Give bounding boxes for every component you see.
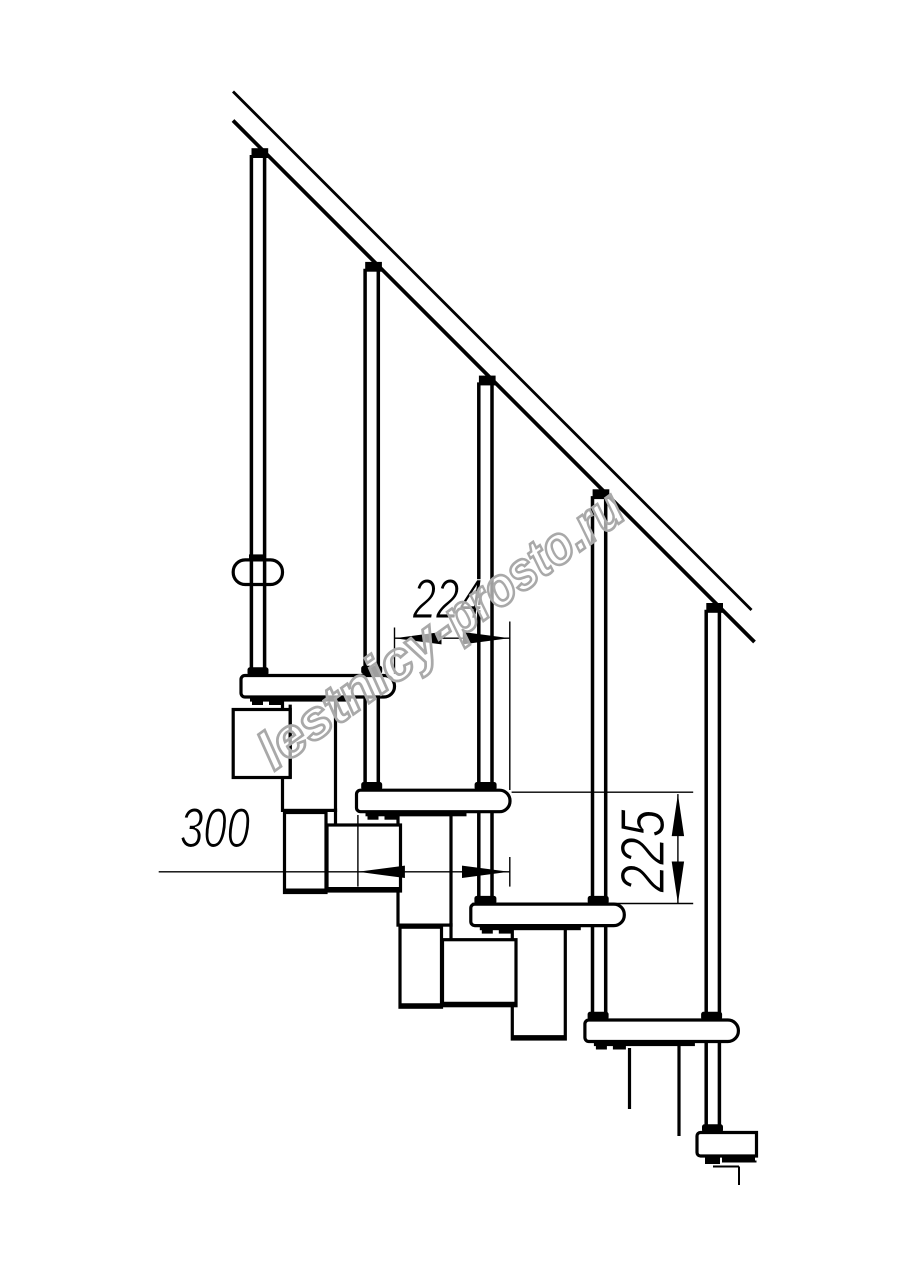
svg-text:225: 225 [609, 809, 678, 893]
svg-text:300: 300 [180, 796, 250, 859]
